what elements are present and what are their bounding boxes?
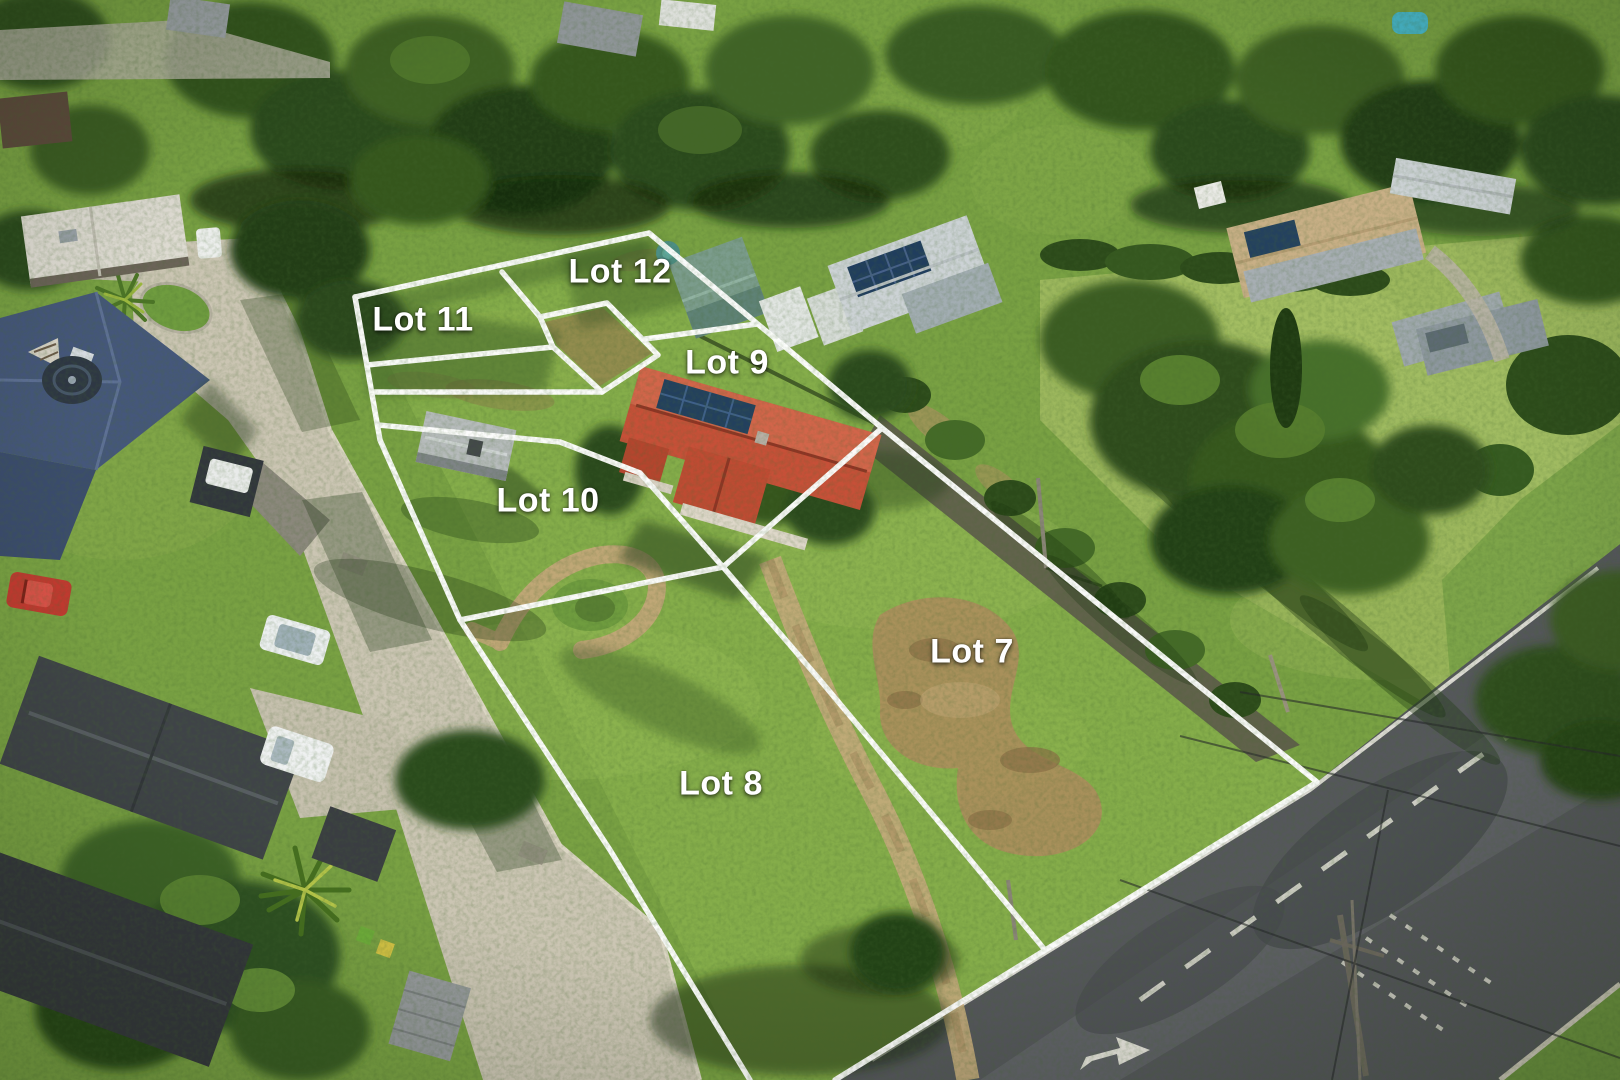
- lot-label-10: Lot 10: [496, 482, 599, 521]
- aerial-photo: [0, 0, 1620, 1080]
- lot-label-9: Lot 9: [685, 344, 769, 383]
- lot-label-8: Lot 8: [679, 765, 763, 804]
- lot-label-7: Lot 7: [930, 633, 1014, 672]
- screenshot-root: Lot 11 Lot 12 Lot 9 Lot 10 Lot 7 Lot 8: [0, 0, 1620, 1080]
- lot-label-12: Lot 12: [568, 253, 671, 292]
- lot-label-11: Lot 11: [372, 301, 473, 340]
- vignette: [0, 0, 1620, 1080]
